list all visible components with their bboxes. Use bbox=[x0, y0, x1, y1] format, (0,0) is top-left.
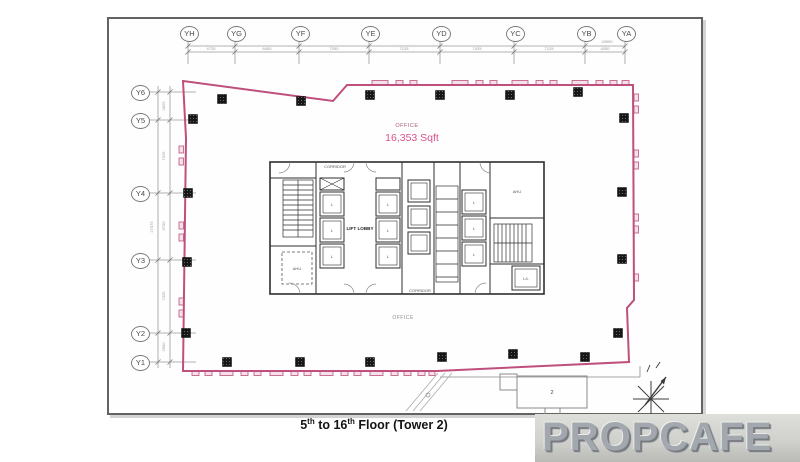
grid-bubble-yd: YD bbox=[432, 26, 451, 42]
corridor-top-label: CORRIDOR bbox=[324, 164, 346, 169]
grid-bubble-y3: Y3 bbox=[131, 253, 150, 269]
grid-bubble-ye: YE bbox=[361, 26, 380, 42]
grid-bubble-y6: Y6 bbox=[131, 85, 150, 101]
grid-bubble-y1: Y1 bbox=[131, 355, 150, 371]
dim-top-bay: 6450 bbox=[252, 46, 282, 51]
service-lift-label: L/L bbox=[523, 276, 529, 281]
core-walls bbox=[270, 162, 544, 294]
annex-label: 2 bbox=[550, 390, 553, 396]
dim-top-bay: 4725 bbox=[196, 46, 226, 51]
grid-bubble-y4: Y4 bbox=[131, 186, 150, 202]
grid-bubble-y2: Y2 bbox=[131, 326, 150, 342]
ramp-lines bbox=[406, 373, 452, 411]
grid-bubble-yc: YC bbox=[506, 26, 525, 42]
floorplan-drawing: CORRIDOR CORRIDOR LIFT LOBBY AHU AHU L/L… bbox=[0, 0, 800, 462]
ground-annex bbox=[440, 366, 640, 414]
watermark-text: PROPCAFE bbox=[535, 414, 800, 460]
dim-top-bay: 7125 bbox=[389, 46, 419, 51]
dim-left-overall: 27075 bbox=[149, 212, 155, 242]
ahu-right-label: AHU bbox=[513, 189, 522, 194]
grid-bubble-yg: YG bbox=[227, 26, 246, 42]
lift-lobby-label: LIFT LOBBY bbox=[346, 226, 373, 231]
grid-bubble-yh: YH bbox=[180, 26, 199, 42]
dim-top-bay: 4050 bbox=[590, 46, 620, 51]
dim-top-overall: 43950 bbox=[592, 39, 622, 44]
dim-top-bay: 7425 bbox=[462, 46, 492, 51]
dim-top-bay: 7050 bbox=[319, 46, 349, 51]
dim-left-bay: 2900 bbox=[161, 332, 167, 362]
office-area-title: OFFICE bbox=[377, 123, 437, 129]
floor-caption: 5th to 16th Floor (Tower 2) bbox=[284, 417, 464, 432]
office-area-lower: OFFICE bbox=[373, 315, 433, 321]
floorplan-page: CORRIDOR CORRIDOR LIFT LOBBY AHU AHU L/L… bbox=[0, 0, 800, 462]
dim-left-bay: 7325 bbox=[161, 281, 167, 311]
office-area-sqft: 16,353 Sqft bbox=[352, 132, 472, 144]
corridor-bottom-label: CORRIDOR bbox=[409, 288, 431, 293]
dim-top-bay: 7125 bbox=[534, 46, 564, 51]
grid-bubble-yf: YF bbox=[291, 26, 310, 42]
grid-bubble-y5: Y5 bbox=[131, 113, 150, 129]
dim-left-bay: 2825 bbox=[161, 91, 167, 121]
dim-left-bay: 7325 bbox=[161, 141, 167, 171]
ahu-left-label: AHU bbox=[293, 266, 302, 271]
compass-icon bbox=[633, 362, 669, 417]
dim-left-bay: 6700 bbox=[161, 211, 167, 241]
propcafe-watermark: PROPCAFE bbox=[535, 414, 800, 462]
